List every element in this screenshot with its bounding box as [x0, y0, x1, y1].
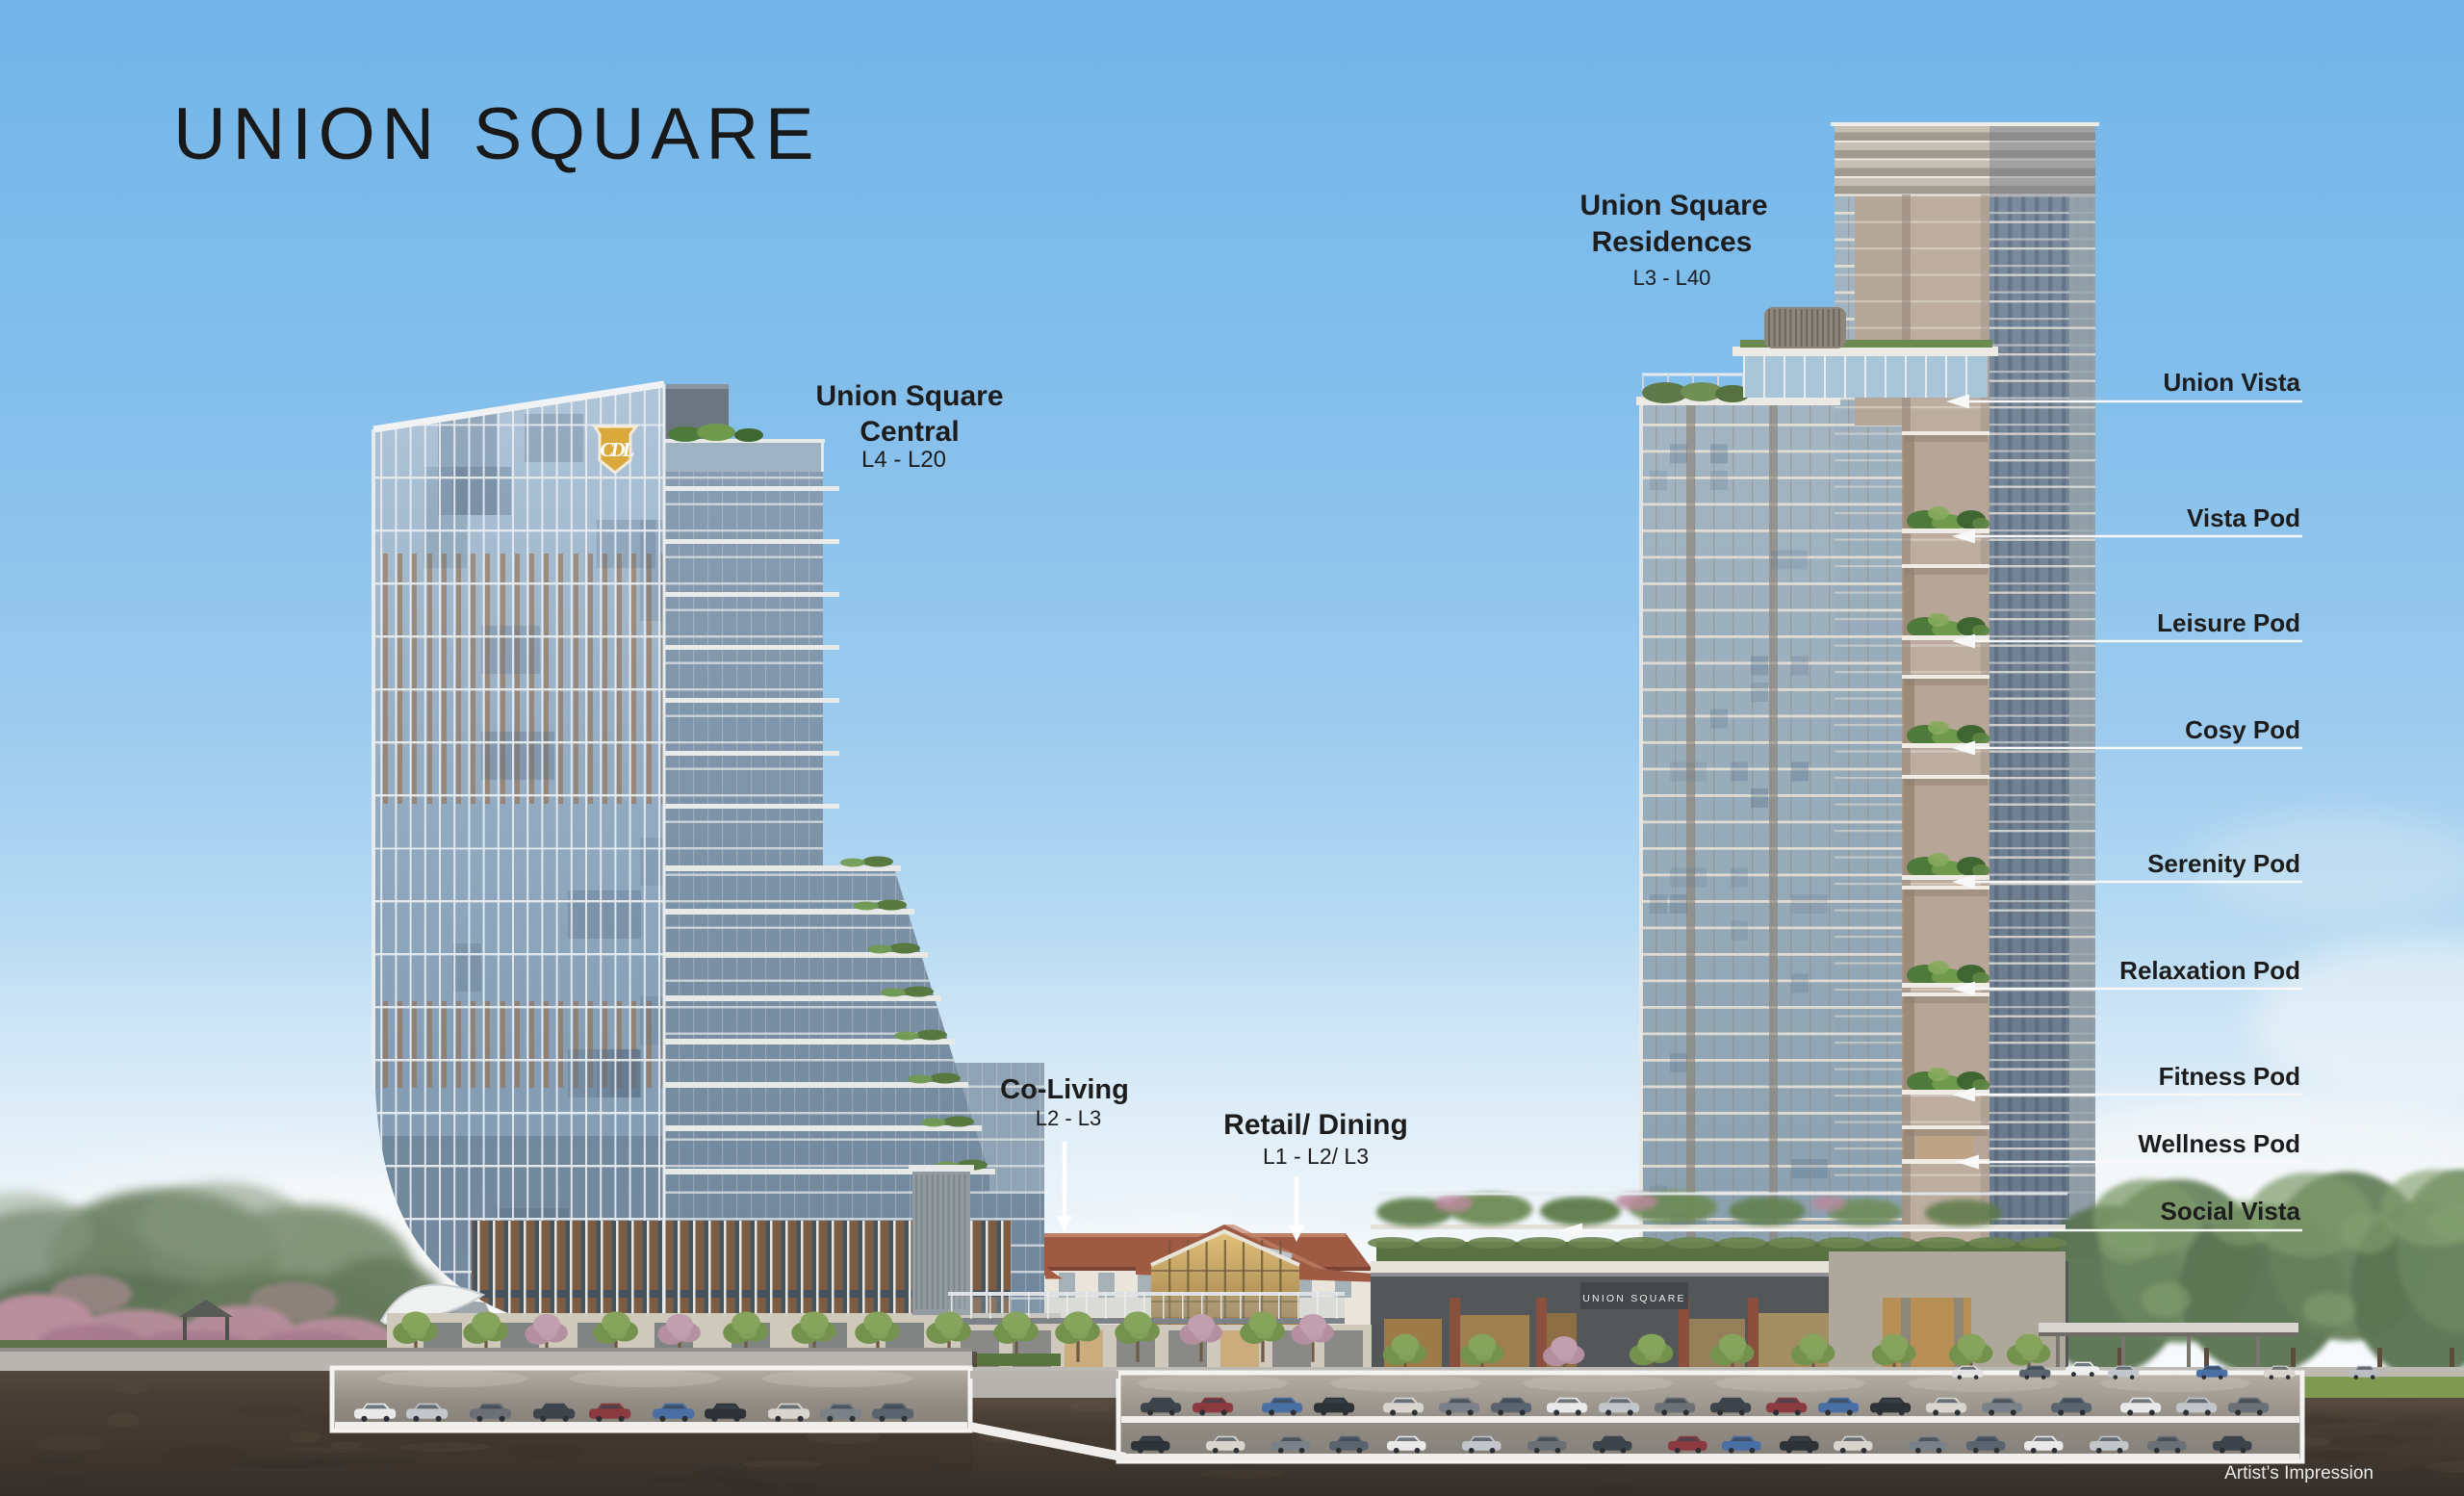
svg-text:L1 - L2/ L3: L1 - L2/ L3 — [1263, 1144, 1369, 1169]
svg-text:Vista Pod: Vista Pod — [2187, 503, 2300, 532]
svg-text:Union Square: Union Square — [815, 380, 1003, 412]
svg-text:UNION SQUARE: UNION SQUARE — [1582, 1293, 1686, 1304]
svg-text:Artist’s Impression: Artist’s Impression — [2224, 1463, 2374, 1483]
svg-text:Cosy Pod: Cosy Pod — [2185, 715, 2300, 744]
svg-text:L2 - L3: L2 - L3 — [1036, 1106, 1102, 1130]
svg-text:CDL: CDL — [601, 438, 634, 461]
svg-text:Social Vista: Social Vista — [2161, 1197, 2301, 1225]
svg-text:Fitness Pod: Fitness Pod — [2159, 1062, 2300, 1091]
svg-text:L3 - L40: L3 - L40 — [1633, 266, 1711, 290]
svg-text:Co-Living: Co-Living — [1000, 1074, 1129, 1105]
svg-text:UNION SQUARE: UNION SQUARE — [173, 93, 820, 175]
svg-text:Serenity Pod: Serenity Pod — [2147, 849, 2300, 878]
svg-text:L4 - L20: L4 - L20 — [861, 447, 946, 473]
svg-text:Residences: Residences — [1592, 226, 1753, 258]
svg-text:Central: Central — [860, 416, 959, 448]
svg-text:Union Vista: Union Vista — [2163, 368, 2300, 397]
svg-text:Union Square: Union Square — [1579, 190, 1767, 221]
svg-text:Retail/ Dining: Retail/ Dining — [1223, 1109, 1408, 1141]
svg-text:Leisure Pod: Leisure Pod — [2157, 608, 2300, 637]
svg-text:Wellness Pod: Wellness Pod — [2138, 1129, 2300, 1158]
svg-text:Relaxation Pod: Relaxation Pod — [2119, 956, 2300, 985]
